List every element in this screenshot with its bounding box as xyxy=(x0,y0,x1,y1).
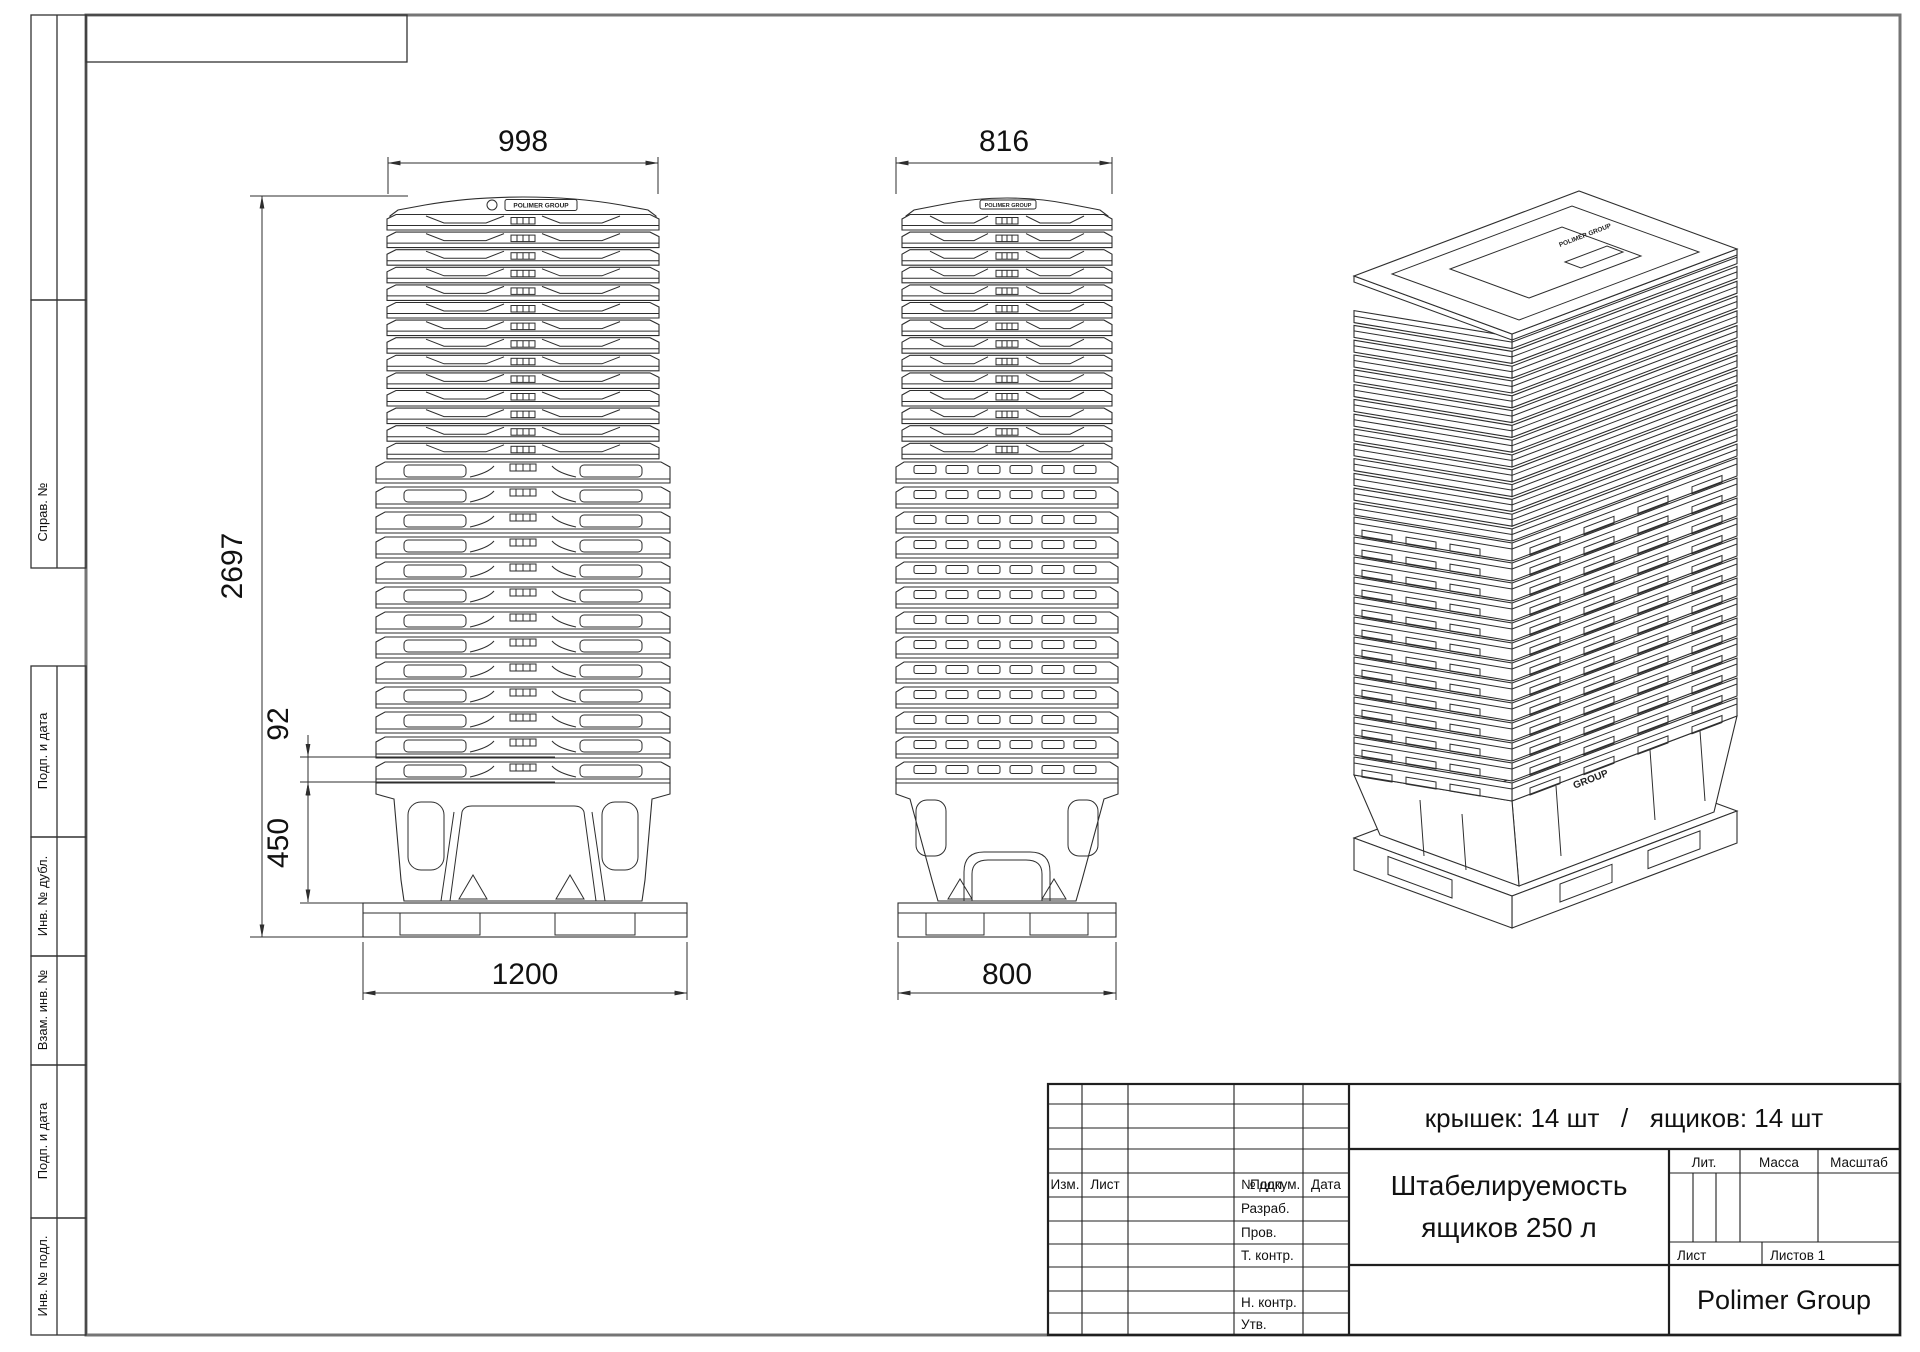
label-razrab: Разраб. xyxy=(1241,1201,1290,1216)
dim-2697: 2697 xyxy=(216,533,249,600)
label-date: Дата xyxy=(1311,1177,1341,1192)
stack-band xyxy=(387,443,659,459)
drawing-sheet: Справ. № Подп. и дата Инв. № дубл. Взам.… xyxy=(0,0,1920,1352)
stack-band xyxy=(376,462,670,483)
label-prov: Пров. xyxy=(1241,1225,1277,1240)
stack-band xyxy=(896,737,1118,758)
stack-band xyxy=(387,373,659,389)
label-izm: Изм. xyxy=(1051,1177,1080,1192)
side-view: POLIMER GROUP xyxy=(896,198,1118,937)
stack-band xyxy=(376,612,670,633)
label-nkontr: Н. контр. xyxy=(1241,1295,1297,1310)
label-lit: Лит. xyxy=(1692,1155,1717,1170)
stack-band xyxy=(896,612,1118,633)
front-pallet xyxy=(363,903,687,937)
stack-band xyxy=(387,391,659,407)
stack-band xyxy=(387,320,659,336)
label-scale: Масштаб xyxy=(1830,1155,1888,1170)
side-lid-stack xyxy=(902,215,1112,459)
doc-title-line1: Штабелируемость xyxy=(1391,1170,1628,1201)
stack-band xyxy=(387,355,659,371)
stack-band xyxy=(896,512,1118,533)
stack-band xyxy=(376,487,670,508)
stack-band xyxy=(902,338,1112,354)
stack-band xyxy=(387,338,659,354)
stack-band xyxy=(902,373,1112,389)
side-box-stack xyxy=(896,462,1118,783)
stack-band xyxy=(376,762,670,783)
label-podp: Подп. xyxy=(1250,1177,1286,1192)
title-block: крышек: 14 шт / ящиков: 14 шт Штабелируе… xyxy=(1048,1084,1900,1335)
stack-band xyxy=(902,267,1112,283)
dim-800: 800 xyxy=(982,958,1032,991)
stack-band xyxy=(896,662,1118,683)
top-left-stamp-box xyxy=(86,15,407,62)
stack-band xyxy=(902,320,1112,336)
label-sheets: Листов 1 xyxy=(1770,1248,1825,1263)
stack-band xyxy=(376,562,670,583)
engineering-drawing: Справ. № Подп. и дата Инв. № дубл. Взам.… xyxy=(0,0,1920,1352)
doc-title-line2: ящиков 250 л xyxy=(1421,1212,1596,1243)
label-massa: Масса xyxy=(1759,1155,1799,1170)
dim-92: 92 xyxy=(262,707,295,740)
stack-band xyxy=(376,712,670,733)
stack-band xyxy=(902,303,1112,319)
stack-band xyxy=(902,355,1112,371)
stack-summary: крышек: 14 шт / ящиков: 14 шт xyxy=(1425,1103,1824,1133)
stack-band xyxy=(387,426,659,442)
stack-band xyxy=(896,462,1118,483)
stack-band xyxy=(896,762,1118,783)
stack-band xyxy=(387,285,659,301)
front-bottom-box xyxy=(376,783,670,901)
stack-band xyxy=(902,408,1112,424)
stack-band xyxy=(896,637,1118,658)
stack-band xyxy=(896,487,1118,508)
side-bottom-box xyxy=(896,783,1118,901)
stack-band xyxy=(387,232,659,248)
stack-band xyxy=(376,512,670,533)
stack-band xyxy=(896,712,1118,733)
label-sheet: Лист xyxy=(1677,1248,1706,1263)
stack-band xyxy=(376,587,670,608)
stack-band xyxy=(902,250,1112,266)
dim-816: 816 xyxy=(979,125,1029,158)
stack-band xyxy=(376,637,670,658)
stack-band xyxy=(896,537,1118,558)
stack-band xyxy=(376,537,670,558)
front-view: POLIMER GROUP xyxy=(363,197,687,937)
margin-label-invpod: Инв. № подл. xyxy=(35,1236,50,1317)
stack-band xyxy=(376,662,670,683)
stack-band xyxy=(902,232,1112,248)
stack-band xyxy=(896,587,1118,608)
side-lid-logo: POLIMER GROUP xyxy=(985,203,1032,209)
label-tkontr: Т. контр. xyxy=(1241,1248,1294,1263)
front-box-stack xyxy=(376,462,670,783)
dim-998: 998 xyxy=(498,125,548,158)
margin-column: Справ. № Подп. и дата Инв. № дубл. Взам.… xyxy=(31,15,86,1335)
label-list: Лист xyxy=(1090,1177,1119,1192)
side-pallet xyxy=(898,903,1116,937)
margin-label-vzam: Взам. инв. № xyxy=(35,970,50,1051)
company-name: Polimer Group xyxy=(1697,1285,1871,1315)
margin-label-invdub: Инв. № дубл. xyxy=(35,856,50,937)
stack-band xyxy=(896,687,1118,708)
stack-band xyxy=(902,215,1112,231)
stack-band xyxy=(387,303,659,319)
margin-label-podp1: Подп. и дата xyxy=(35,712,50,789)
stack-band xyxy=(387,267,659,283)
margin-label-sprav: Справ. № xyxy=(35,482,50,541)
label-utv: Утв. xyxy=(1241,1317,1267,1332)
stack-band xyxy=(902,391,1112,407)
stack-band xyxy=(387,408,659,424)
front-lid-stack xyxy=(387,215,659,459)
stack-band xyxy=(896,562,1118,583)
dim-1200: 1200 xyxy=(492,958,559,991)
stack-band xyxy=(387,215,659,231)
stack-band xyxy=(902,285,1112,301)
dim-450: 450 xyxy=(262,818,295,868)
stack-band xyxy=(376,737,670,758)
stack-band xyxy=(387,250,659,266)
stack-band xyxy=(902,443,1112,459)
front-lid-logo: POLIMER GROUP xyxy=(513,203,569,210)
margin-label-podp2: Подп. и дата xyxy=(35,1102,50,1179)
stack-band xyxy=(376,687,670,708)
iso-view: POLIMER GROUP POLIMER GROUP xyxy=(1354,191,1737,928)
stack-band xyxy=(902,426,1112,442)
